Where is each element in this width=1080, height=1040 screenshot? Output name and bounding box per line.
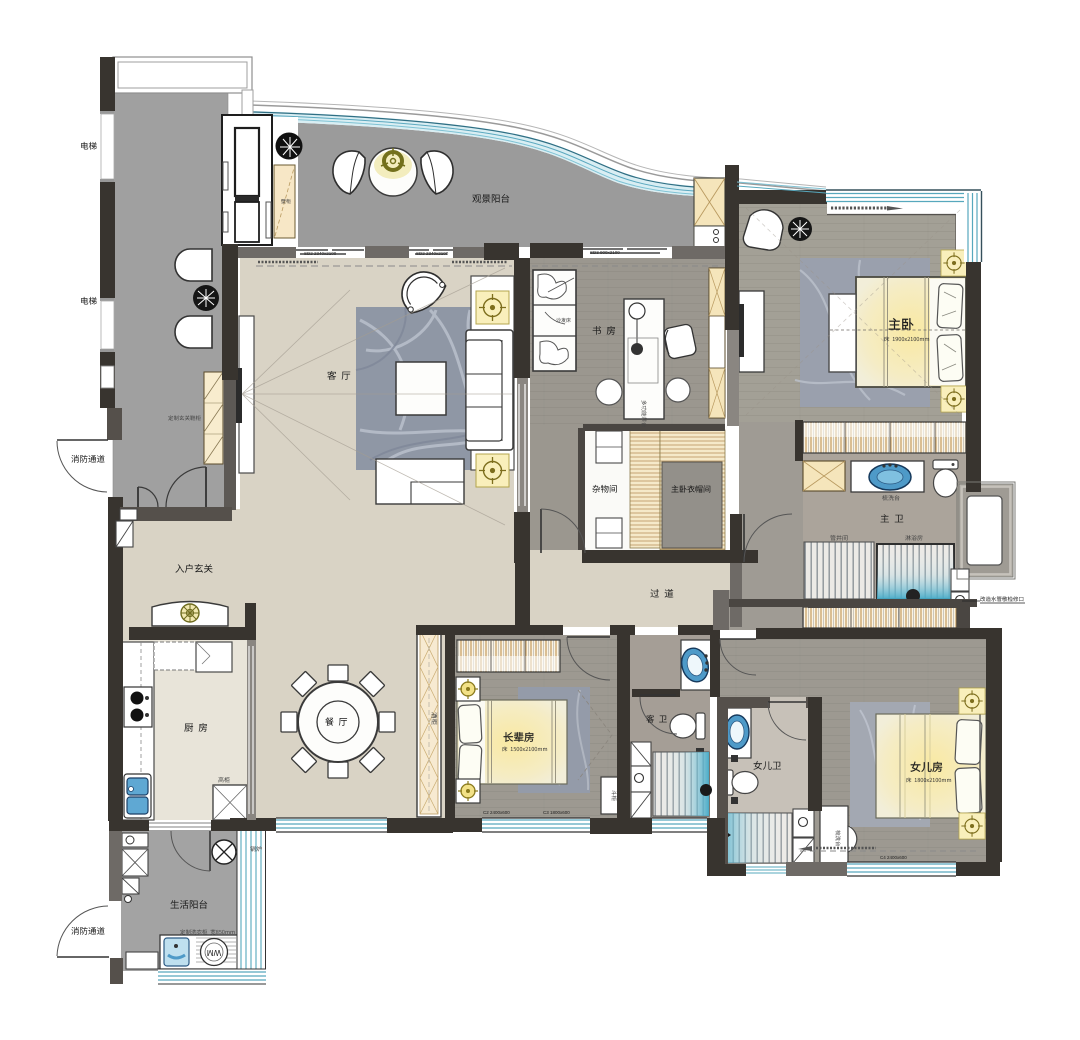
svg-text:C2 2400x600: C2 2400x600 bbox=[483, 810, 510, 815]
svg-text:C4 2400x600: C4 2400x600 bbox=[880, 855, 907, 860]
svg-text:SD3 900x2100: SD3 900x2100 bbox=[590, 250, 620, 255]
svg-text:WM: WM bbox=[207, 948, 222, 957]
svg-text:SD2 2340x2100: SD2 2340x2100 bbox=[416, 251, 449, 256]
svg-text:SD2 2340x2100: SD2 2340x2100 bbox=[304, 251, 337, 256]
svg-text:C3 1800x600: C3 1800x600 bbox=[543, 810, 570, 815]
